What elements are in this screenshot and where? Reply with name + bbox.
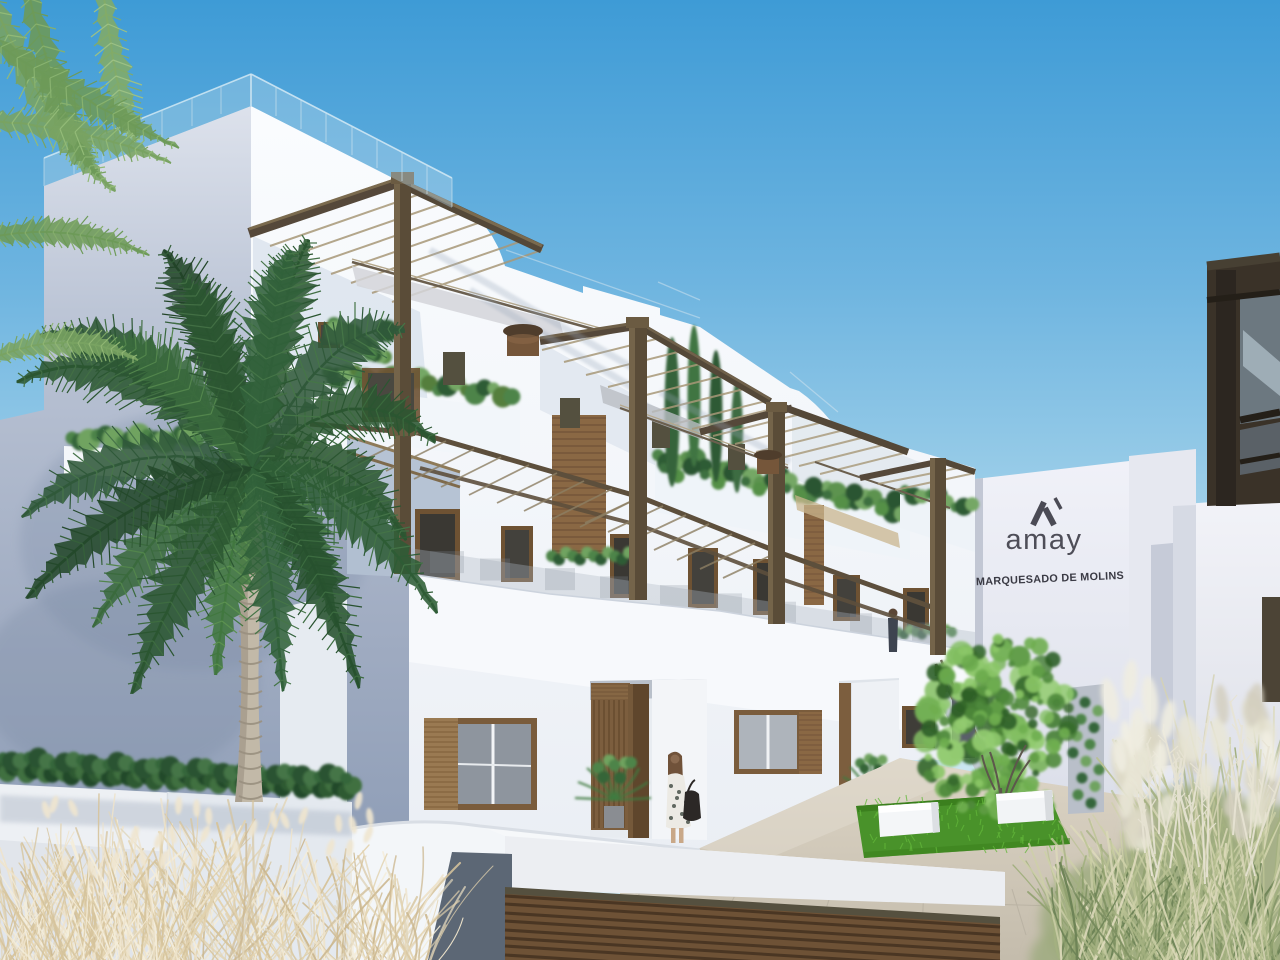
svg-text:amay: amay (1006, 524, 1083, 556)
